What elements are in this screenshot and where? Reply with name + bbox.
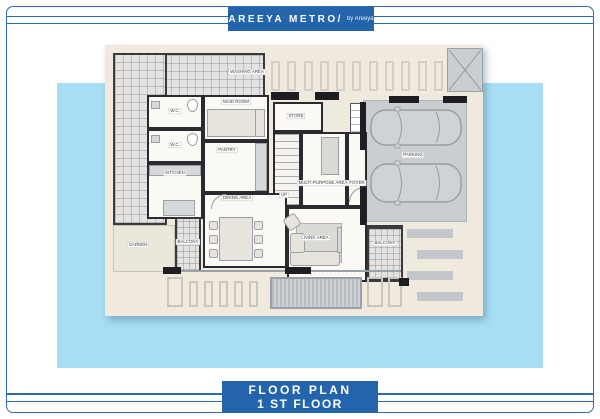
page: AREEYA METRO/ by Areeya	[0, 0, 600, 419]
plan-title: FLOOR PLAN 1 ST FLOOR	[222, 381, 378, 413]
sink-icon	[151, 101, 160, 109]
floor-plan: WASHING AREA MAID ROOM W.C. W.C. PANTRY …	[105, 45, 483, 316]
label-balcony: BALCONY	[373, 240, 397, 246]
paver-slab	[189, 281, 198, 307]
label-washing-area: WASHING AREA	[228, 69, 265, 75]
stepping-stone	[417, 250, 463, 259]
brand-logo-byline: by Areeya	[347, 16, 374, 22]
wall-segment	[271, 92, 299, 100]
paver-slab	[249, 281, 258, 307]
label-up: UP	[279, 192, 288, 198]
pergola-slat	[320, 61, 329, 91]
pergola-slat	[385, 61, 394, 91]
pergola-slat	[336, 61, 345, 91]
label-wc: W.C.	[169, 108, 182, 114]
chair	[254, 235, 263, 244]
pergola-band	[271, 55, 443, 97]
sofa	[290, 251, 340, 266]
pergola-slat	[401, 61, 410, 91]
plan-title-line1: FLOOR PLAN	[249, 383, 352, 397]
stepping-stone	[407, 229, 453, 238]
wall-segment	[163, 267, 181, 274]
pergola-slat	[304, 61, 313, 91]
paver-slab	[234, 281, 243, 307]
label-multi-purpose: MULTI-PURPOSE AREA	[297, 180, 349, 186]
wall-segment	[285, 267, 311, 274]
label-kitchen: KITCHEN	[164, 170, 187, 176]
label-garden: GARDEN	[127, 242, 149, 248]
garden-area	[113, 225, 175, 272]
sliding-door-line	[163, 270, 401, 272]
chair	[254, 221, 263, 230]
chair	[209, 249, 218, 258]
stepping-stone	[417, 292, 463, 301]
chair	[254, 249, 263, 258]
label-dining: DINING AREA	[221, 195, 253, 201]
wall-segment	[399, 278, 409, 286]
planter-hatch	[270, 277, 362, 309]
tv-cabinet	[337, 227, 342, 253]
stepping-stone	[407, 271, 453, 280]
wall-segment	[360, 102, 366, 150]
pergola-slat	[271, 61, 280, 91]
pergola-slat	[287, 61, 296, 91]
kitchen-island	[163, 200, 195, 216]
pergola-slat	[418, 61, 427, 91]
rug	[321, 137, 339, 175]
paver-slab	[204, 281, 213, 307]
car-top-view-icon	[368, 105, 464, 150]
label-living: LIVING AREA	[300, 235, 331, 241]
label-store: STORE	[287, 113, 305, 119]
balcony-right	[367, 225, 403, 282]
dining-table	[219, 217, 253, 261]
pergola-slat	[352, 61, 361, 91]
meter-box-icon	[447, 48, 483, 92]
pergola-slat	[434, 61, 443, 91]
plan-title-line2: 1 ST FLOOR	[257, 397, 343, 411]
bed	[207, 109, 265, 137]
wall-segment	[443, 96, 467, 103]
brand-logo: AREEYA METRO/ by Areeya	[228, 7, 374, 31]
pantry-counter	[255, 143, 267, 191]
label-balcony: BALCONY	[176, 239, 200, 245]
car-top-view-icon	[368, 158, 464, 208]
wall-segment	[315, 92, 339, 100]
brand-logo-text: AREEYA METRO/	[228, 14, 343, 25]
paver-slab	[367, 277, 383, 307]
label-wc: W.C.	[169, 142, 182, 148]
label-maid-room: MAID ROOM	[221, 99, 250, 105]
sink-icon	[151, 135, 160, 143]
paver-slab	[219, 281, 228, 307]
wall-segment	[389, 96, 419, 103]
chair	[209, 221, 218, 230]
wall-segment	[360, 185, 366, 225]
label-pantry: PANTRY	[217, 147, 238, 153]
paver-slab	[167, 277, 183, 307]
chair	[209, 235, 218, 244]
label-parking: PARKING	[402, 152, 425, 158]
pergola-slat	[369, 61, 378, 91]
label-foyer: FOYER	[348, 180, 366, 186]
